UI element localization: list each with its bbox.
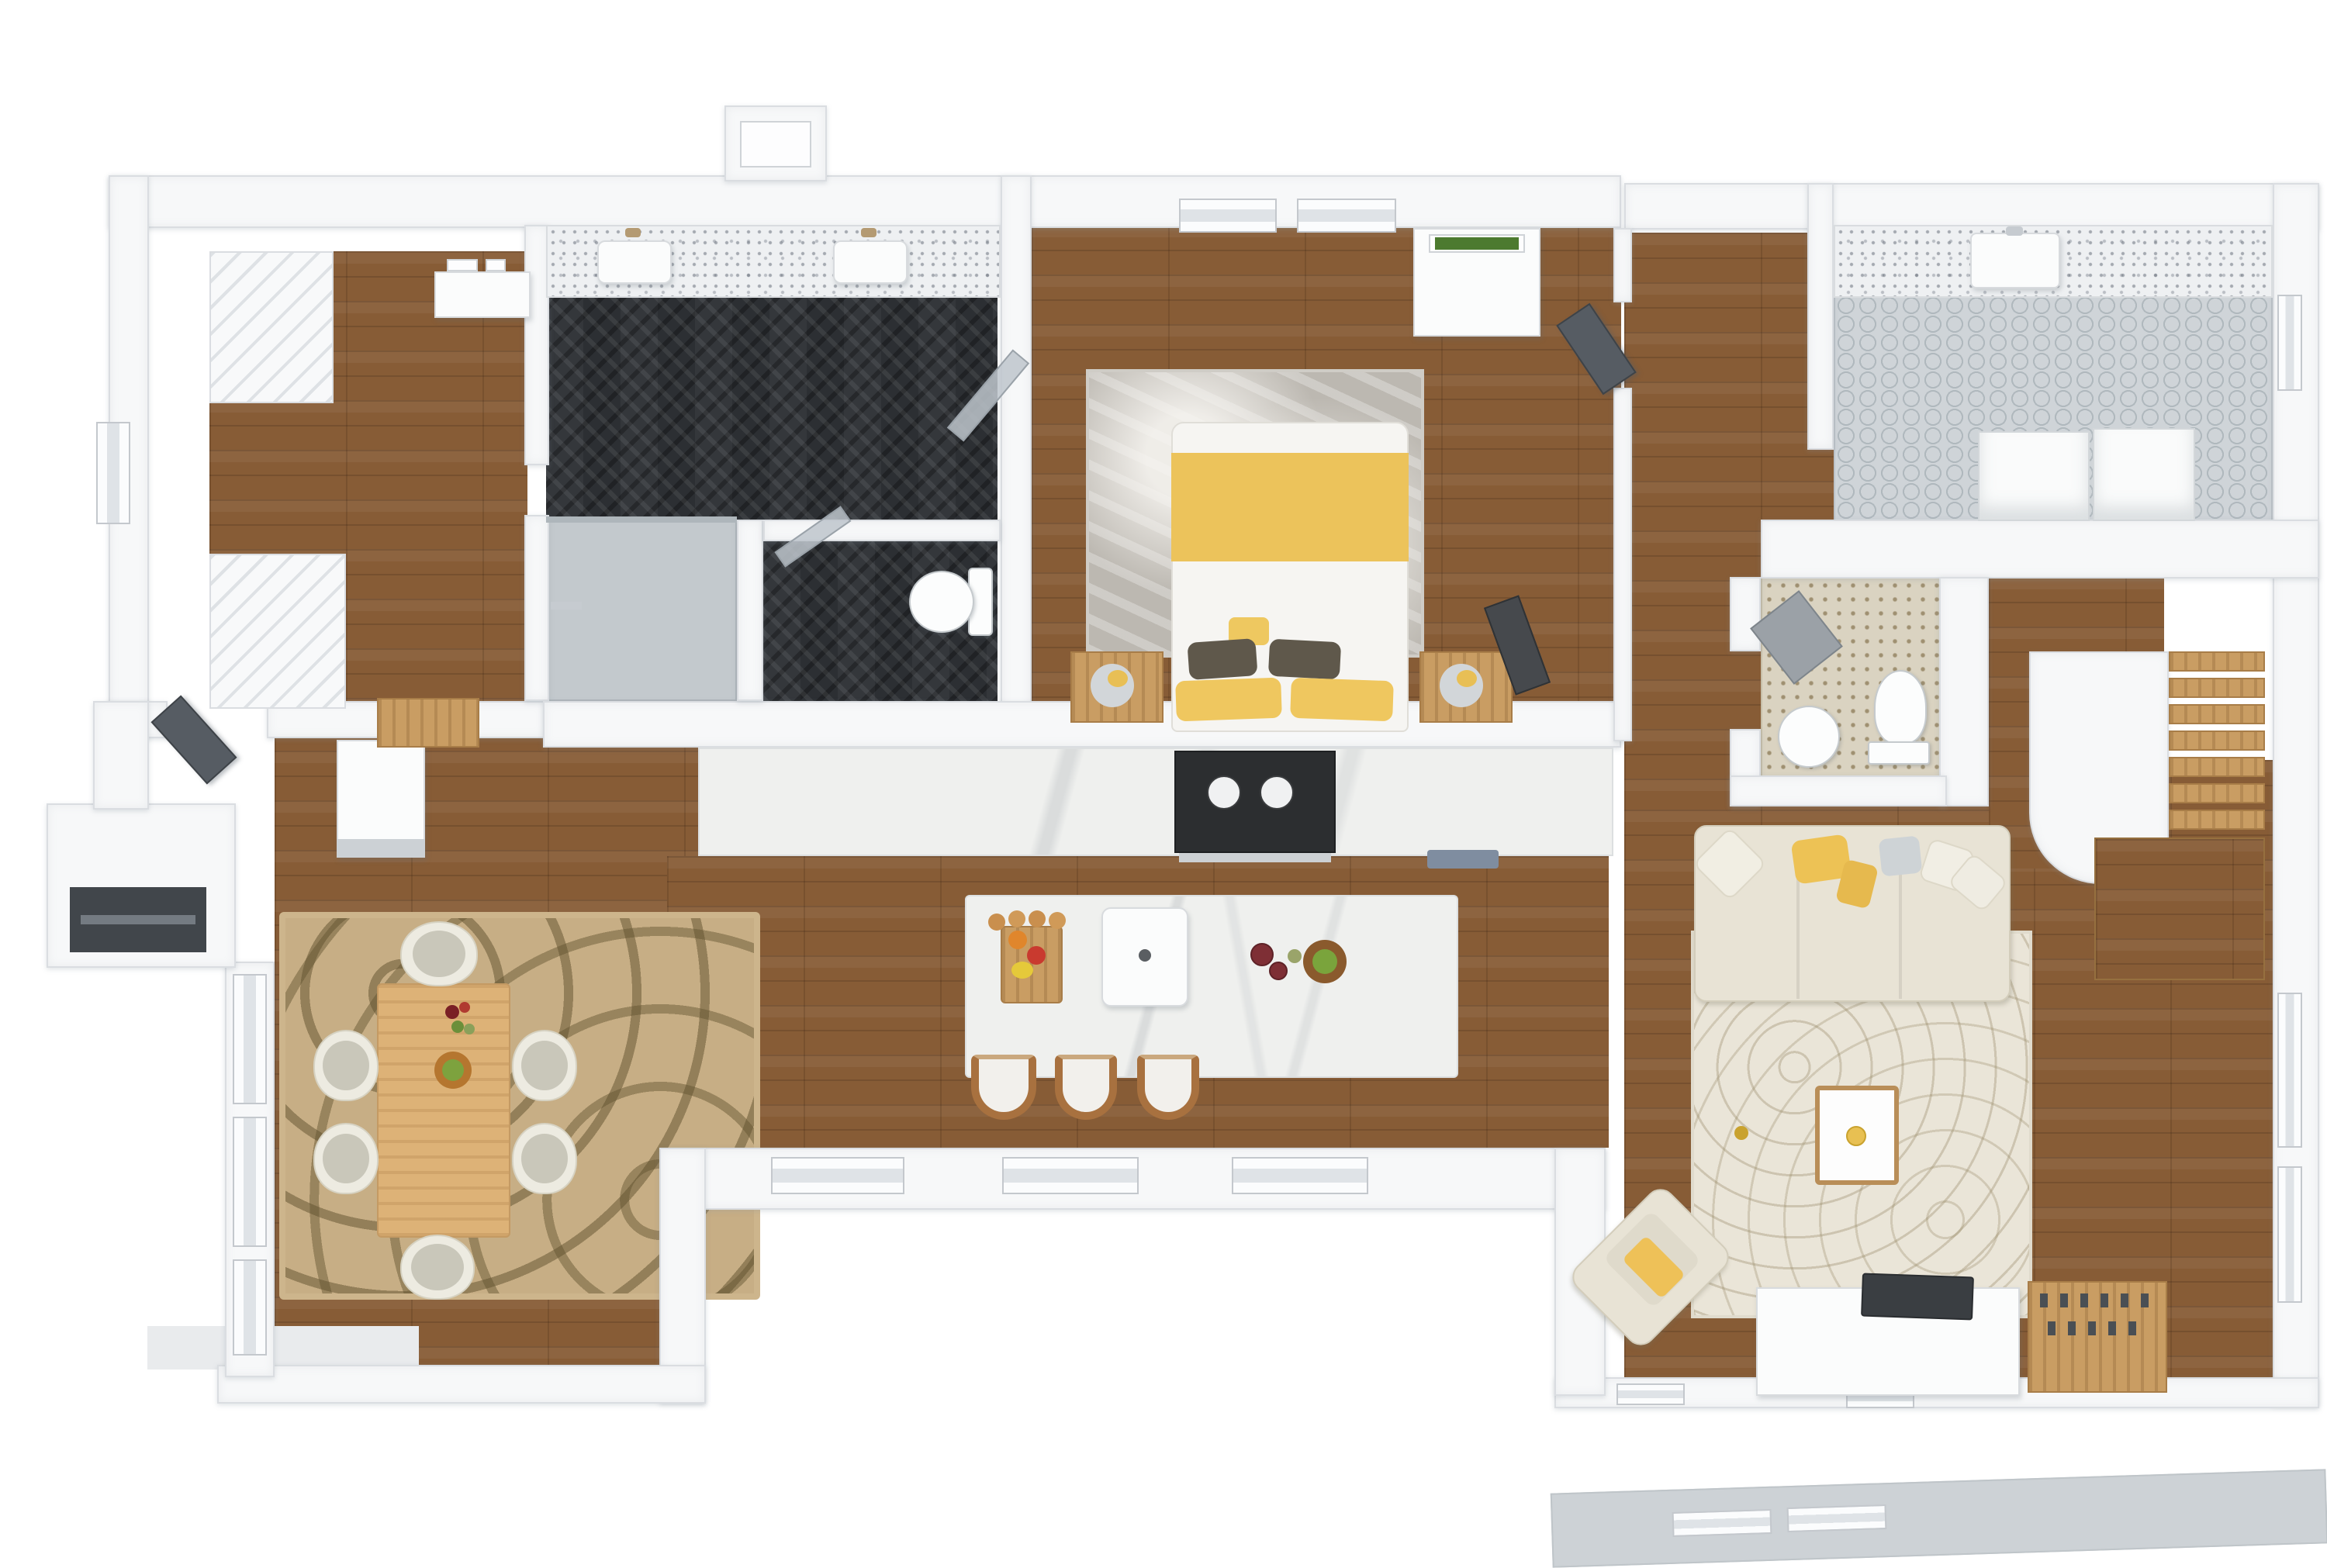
bed-blanket <box>1171 453 1409 561</box>
wall-bath2-west-a <box>1730 577 1761 651</box>
pot-filler <box>1427 850 1499 869</box>
bed-pillow-yellow-1 <box>1175 678 1282 722</box>
bread-3 <box>1029 910 1046 927</box>
sofa-seam-2 <box>1899 869 1902 999</box>
limes <box>1312 949 1337 974</box>
kitchen-counter-north <box>698 748 1613 856</box>
neighbor-window-2 <box>1787 1504 1887 1532</box>
bedroom2-desk <box>434 271 531 318</box>
stove-burner-1 <box>1207 775 1241 810</box>
window-kitchen-south-2 <box>1002 1157 1139 1194</box>
wall-bath2-closet-divider <box>1939 577 1989 806</box>
wall-top-right <box>1624 183 2319 230</box>
bottle-1 <box>445 1005 459 1019</box>
stool-3 <box>1137 1055 1199 1120</box>
stair-landing <box>2094 838 2265 980</box>
window-bedroom2-west <box>96 422 130 524</box>
stair-tread-3 <box>2169 704 2265 724</box>
window-dining-west-1 <box>233 974 267 1104</box>
closet-unit-sw <box>209 554 346 709</box>
dining-table <box>377 983 510 1238</box>
wall-laundry-west <box>1807 183 1834 450</box>
fruit-2 <box>1027 946 1046 965</box>
window-dining-west-2 <box>233 1117 267 1247</box>
bottle-2 <box>459 1002 470 1013</box>
dryer <box>2093 428 2195 521</box>
window-laundry-east <box>2277 295 2302 391</box>
bed-pillow-dark-2 <box>1268 639 1341 680</box>
bed-pillow-yellow-2 <box>1290 678 1394 722</box>
nightstand-right-accent <box>1457 670 1477 687</box>
shower-glass-edge <box>546 516 737 523</box>
frame-niche <box>740 121 811 168</box>
window-living-east-2 <box>2277 1166 2302 1303</box>
wall-bedroom-east-a <box>1613 228 1632 302</box>
decor-gold <box>1734 1126 1748 1140</box>
mbath-faucet-1 <box>625 228 641 237</box>
shower-fixture <box>551 602 582 610</box>
laundry-sink <box>1970 233 2060 288</box>
bed-pillow-dark-1 <box>1187 638 1257 680</box>
wall-dining-south <box>217 1365 706 1404</box>
console-sideboard <box>377 698 479 748</box>
cup-green <box>1288 949 1302 963</box>
nightstand-left-accent <box>1108 670 1128 687</box>
chair-top-cushion <box>413 931 465 977</box>
frame-b <box>486 259 506 271</box>
wall-mbath-bedroom-divider <box>1001 175 1032 741</box>
bath2-toilet-tank <box>1868 741 1930 765</box>
niche-shelf <box>81 915 195 924</box>
floor-shower <box>546 520 737 701</box>
bath2-toilet-bowl <box>1874 670 1927 744</box>
stair-tread-4 <box>2169 730 2265 751</box>
fruit-3 <box>1011 962 1033 979</box>
crate-tools-1 <box>2040 1293 2152 1307</box>
stove <box>1174 751 1336 853</box>
neighbor-window-1 <box>1672 1509 1772 1537</box>
wall-bedroom-east-b <box>1613 388 1632 741</box>
window-dining-west-3 <box>233 1259 267 1356</box>
plate-2 <box>1269 962 1288 980</box>
stove-handle <box>1179 853 1331 862</box>
sofa-pillow-grey <box>1879 835 1923 876</box>
window-bedroom-2 <box>1297 199 1396 233</box>
chair-right-1-cushion <box>521 1041 568 1090</box>
closet-unit-nw <box>209 251 334 403</box>
frame-a <box>447 259 478 271</box>
sofa-seam-1 <box>1796 869 1800 999</box>
stair-tread-6 <box>2169 783 2265 803</box>
window-living-east-1 <box>2277 993 2302 1148</box>
stool-1 <box>971 1055 1036 1120</box>
dresser-plant <box>1435 237 1519 250</box>
washer <box>1978 431 2090 521</box>
bread-2 <box>1008 910 1025 927</box>
wall-mid-south <box>1761 520 2319 579</box>
bread-1 <box>988 914 1005 931</box>
mbath-sink-1 <box>597 240 672 284</box>
laundry-faucet <box>2006 226 2023 236</box>
wall-bedroom2-right-b <box>524 515 549 701</box>
plate-1 <box>1250 943 1274 966</box>
coffee-table-dish <box>1846 1126 1866 1146</box>
crate-tools-2 <box>2048 1321 2141 1335</box>
dining-limes <box>442 1059 464 1081</box>
chair-left-1-cushion <box>323 1041 369 1090</box>
fruit-1 <box>1008 931 1027 949</box>
wc-toilet-bowl <box>909 571 974 633</box>
window-kitchen-south-3 <box>1232 1157 1368 1194</box>
stove-burner-2 <box>1260 775 1294 810</box>
neighbor-roof-slab <box>1551 1469 2327 1567</box>
laptop <box>1861 1273 1974 1321</box>
window-living-south-1 <box>1616 1383 1685 1405</box>
floor-entry <box>147 1326 419 1369</box>
stool-2 <box>1055 1055 1117 1120</box>
bath2-pedestal-sink <box>1778 706 1840 768</box>
bottle-3 <box>451 1021 464 1033</box>
floor-plan <box>0 0 2327 1551</box>
chair-left-2-cushion <box>323 1134 369 1183</box>
chair-right-2-cushion <box>521 1134 568 1183</box>
island-drain <box>1139 949 1151 962</box>
hall-closet-front <box>337 839 425 858</box>
chair-bottom-cushion <box>411 1244 464 1290</box>
wall-shower-divider <box>737 520 763 701</box>
mbath-faucet-2 <box>861 228 877 237</box>
stair-tread-1 <box>2169 651 2265 672</box>
stair-tread-5 <box>2169 757 2265 777</box>
bottle-4 <box>464 1024 475 1034</box>
wall-bath2-south <box>1730 775 1947 806</box>
stair-tread-2 <box>2169 678 2265 698</box>
window-kitchen-south-1 <box>771 1157 904 1194</box>
wall-entry-west <box>93 701 149 810</box>
stair-tread-7 <box>2169 810 2265 830</box>
bread-4 <box>1049 912 1066 929</box>
window-bedroom-1 <box>1179 199 1277 233</box>
mbath-sink-2 <box>833 240 908 284</box>
floor-mbath-herringbone <box>546 298 998 520</box>
